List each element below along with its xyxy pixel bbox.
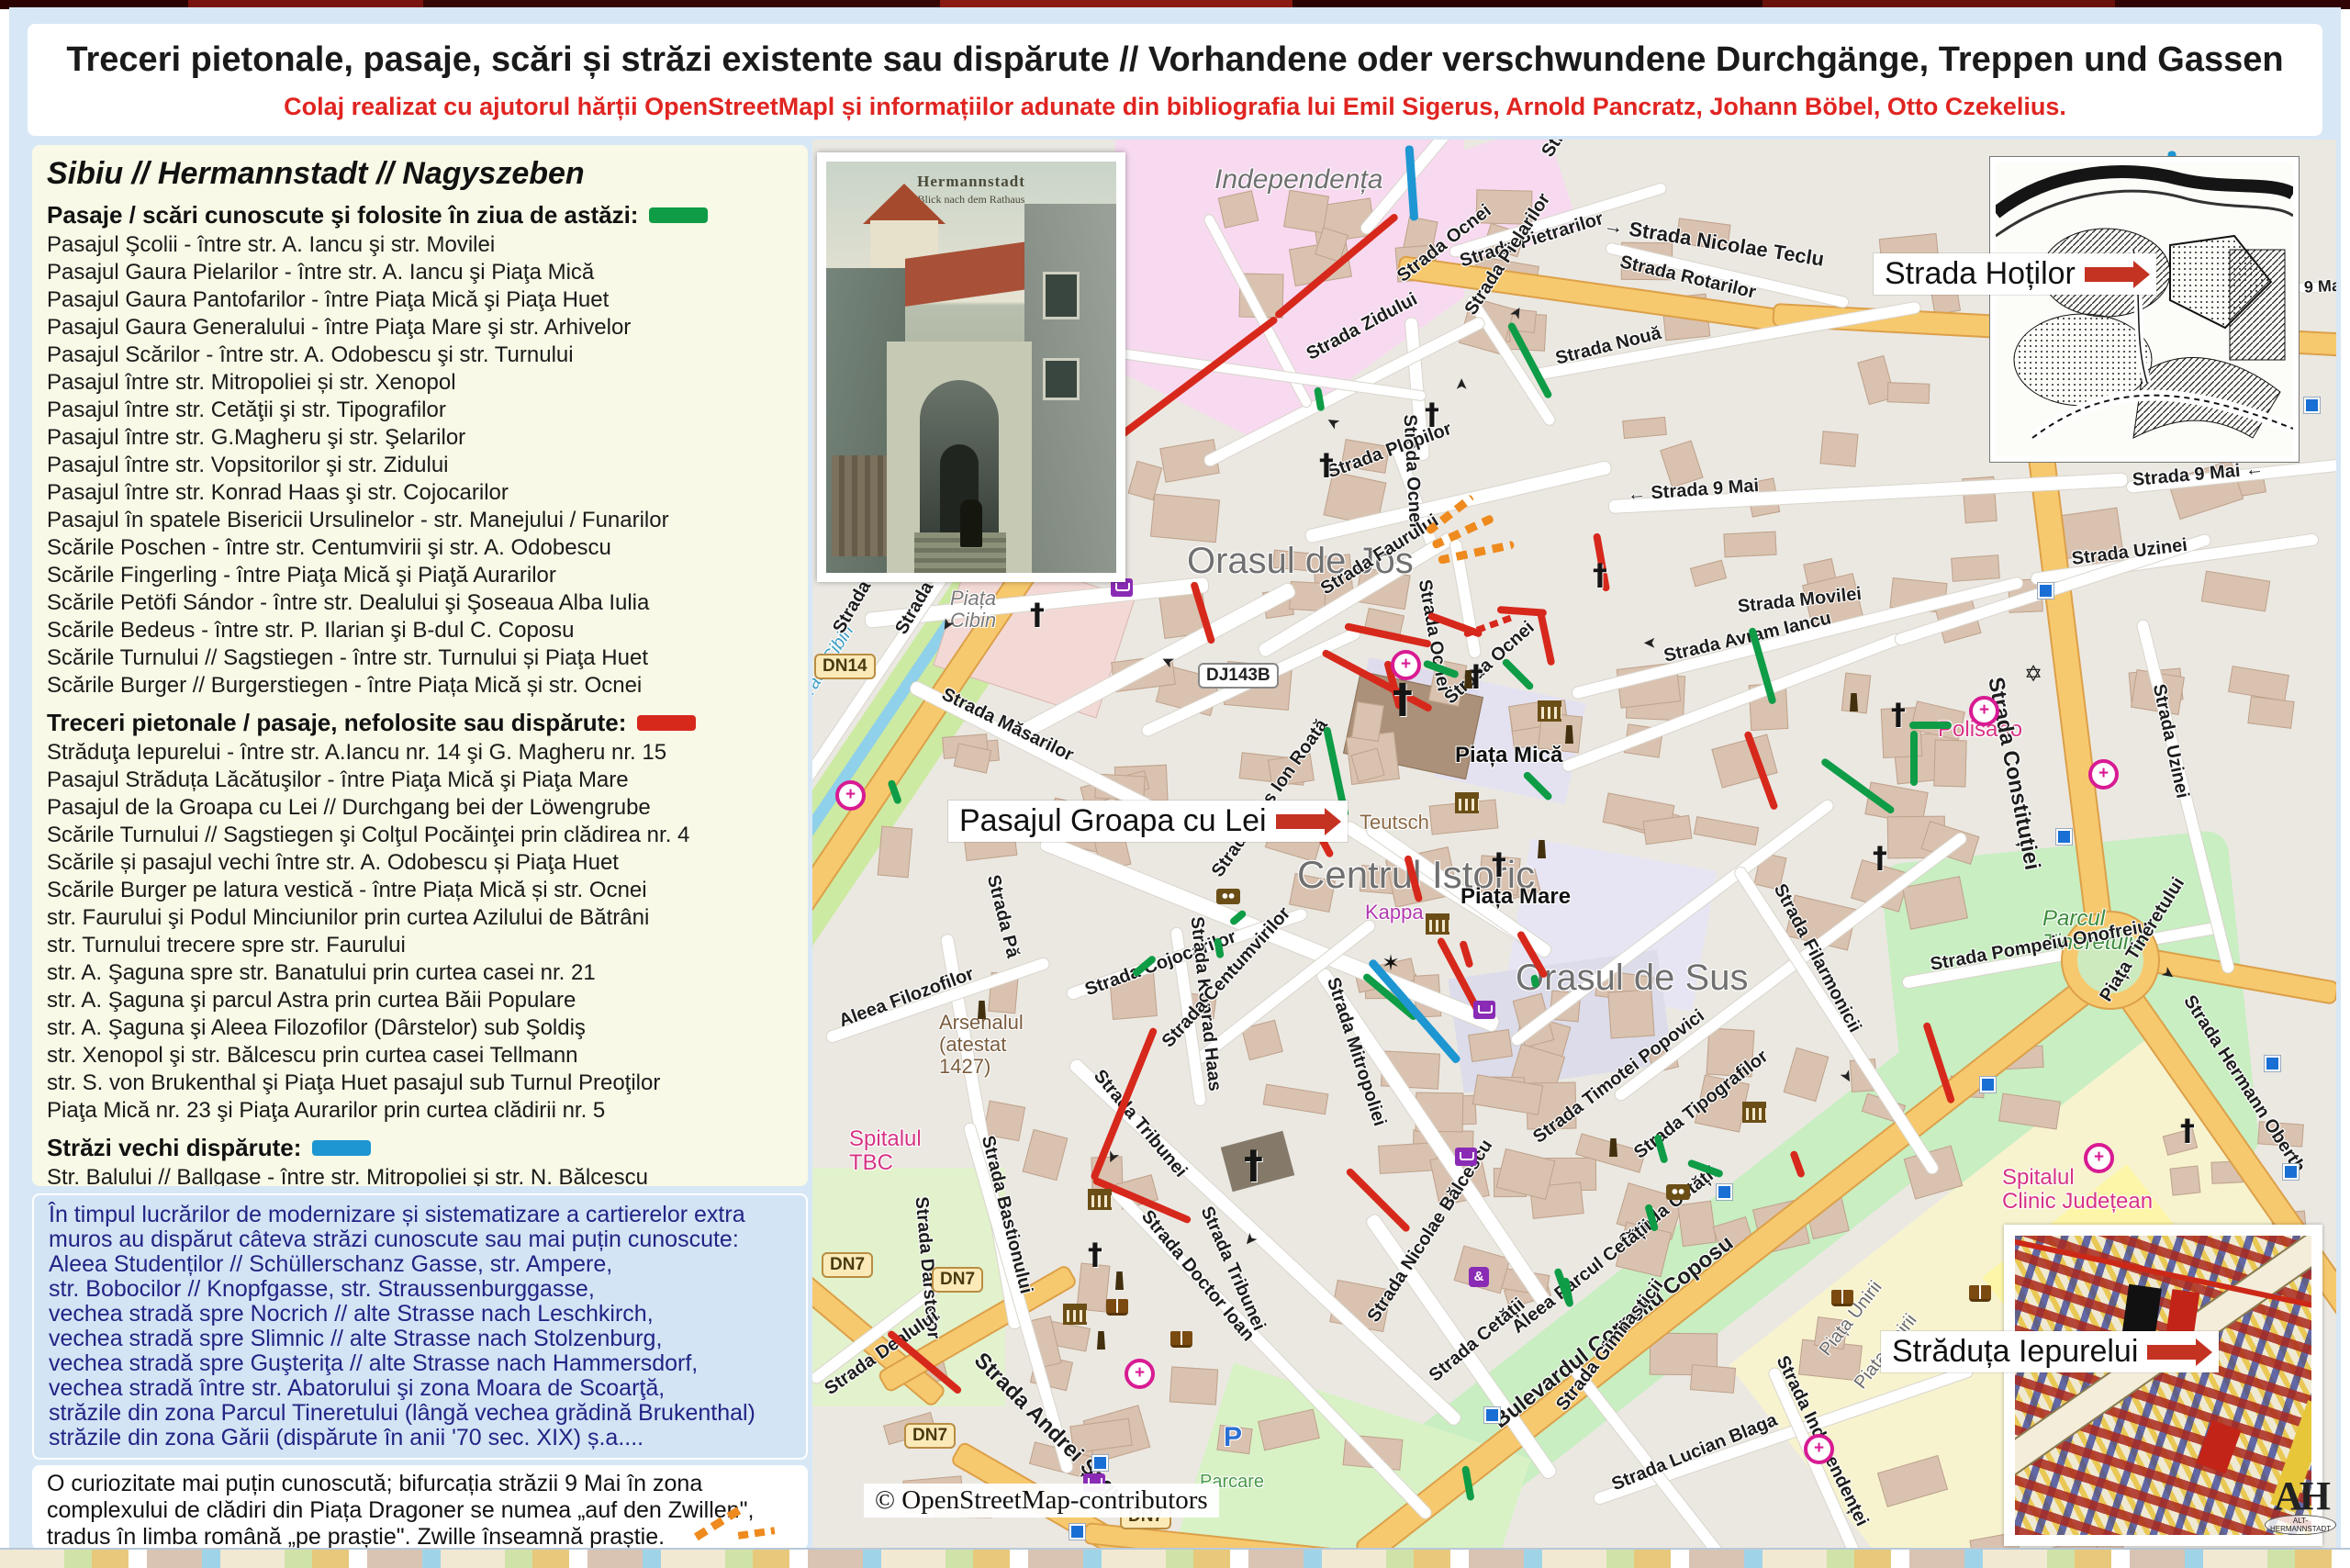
- church-icon: [1891, 700, 1906, 729]
- list-item: Scările Petöfi Sándor - între str. Dealu…: [47, 589, 808, 617]
- list-item: Pasajul Gaura Pielarilor - între str. A.…: [47, 259, 808, 286]
- overlay-segment: [1459, 940, 1473, 969]
- church-icon: [1593, 560, 1607, 589]
- note-line: vechea stradă spre Nocrich // alte Stras…: [49, 1302, 806, 1327]
- legend-sidebar: Sibiu // Hermannstadt // Nagyszeben Pasa…: [32, 145, 808, 1186]
- list-item: Pasajul între str. Konrad Haas şi str. C…: [47, 479, 808, 507]
- historical-photo: Hermannstadt Blick nach dem Rathaus: [826, 162, 1116, 573]
- list-item: Str. Balului // Ballgase - între str. Mi…: [47, 1164, 808, 1186]
- list-item: Scările Turnului // Sagstiegen şi Colţul…: [47, 822, 808, 849]
- area-label: Piața Mare: [1460, 885, 1571, 909]
- photo-window: [1043, 272, 1080, 319]
- list-item: Străduţa Iepurelui - între str. A.Iancu …: [47, 739, 808, 767]
- church-icon: [1873, 843, 1887, 872]
- road-ref-badge: DN7: [932, 1267, 983, 1293]
- photo-fence: [832, 455, 887, 556]
- note-line: vechea stradă între str. Abatorului şi z…: [49, 1376, 806, 1401]
- callout-label: Pasajul Groapa cu Lei: [959, 803, 1267, 839]
- list-item: str. Faurului şi Podul Minciunilor prin …: [47, 904, 808, 932]
- museum-icon: [1742, 1102, 1766, 1123]
- list-item: Scările Burger pe latura vestică - între…: [47, 877, 808, 904]
- road-ref-badge: DN7: [822, 1252, 873, 1278]
- list-item: Scările Fingerling - între Piaţa Mică şi…: [47, 562, 808, 589]
- church-icon: [1393, 679, 1413, 720]
- note-line: străzile din zona Gării (dispărute în an…: [49, 1426, 806, 1450]
- building: [1723, 532, 1776, 558]
- old-map-drawing: [1996, 162, 2293, 456]
- monument-icon: [1097, 1331, 1105, 1350]
- book-icon: [1831, 1290, 1853, 1306]
- hospital-icon: [835, 780, 866, 811]
- building: [1150, 494, 1220, 543]
- area-label: Orasul de Sus: [1516, 958, 1748, 998]
- list-item: str. S. von Brukenthal şi Piaţa Huet pas…: [47, 1070, 808, 1097]
- blue-square-icon: [1484, 1407, 1500, 1423]
- museum-icon: [1088, 1189, 1112, 1210]
- photo-window: [1043, 358, 1080, 400]
- hospital-icon: [1969, 696, 1999, 726]
- hospital-icon: [1391, 650, 1421, 680]
- list-item: Pasajul Scărilor - între str. A. Odobesc…: [47, 342, 808, 369]
- existing-passages-list: Pasajul Şcolii - între str. A. Iancu şi …: [47, 231, 808, 700]
- cart-icon: [1455, 1148, 1477, 1166]
- callout-label: Străduța Iepurelui: [1892, 1334, 2138, 1370]
- blue-square-icon: [1069, 1524, 1085, 1540]
- road-ref-badge: DN14: [814, 654, 876, 679]
- monument-icon: [1850, 693, 1858, 711]
- monument-icon: [978, 1001, 986, 1019]
- building: [1622, 417, 1666, 439]
- note-line: vechea stradă spre Slimnic // alte Stras…: [49, 1327, 806, 1351]
- list-item: Pasajul Gaura Pantofarilor - între Piaţa…: [47, 286, 808, 314]
- museum-icon: [1538, 700, 1561, 722]
- section-title-text: Străzi vechi dispărute:: [47, 1134, 301, 1162]
- list-item: str. A. Şaguna spre str. Banatului prin …: [47, 959, 808, 987]
- modernization-note-box: În timpul lucrărilor de modernizare și s…: [32, 1193, 808, 1460]
- building: [878, 825, 913, 877]
- monument-icon: [1609, 1138, 1617, 1157]
- star-icon: [1382, 953, 1400, 975]
- red-arrow-icon: [2085, 267, 2134, 282]
- building: [1643, 815, 1693, 846]
- note-line: muros au dispărut câteva străzi cunoscut…: [49, 1227, 806, 1252]
- list-item: str. Turnului trecere spre str. Faurului: [47, 932, 808, 959]
- museum-icon: [1455, 792, 1479, 813]
- list-item: Scările Poschen - între str. Centumvirii…: [47, 534, 808, 562]
- building: [1819, 431, 1858, 466]
- hospital-icon: [1804, 1434, 1834, 1464]
- map-callout: Pasajul Groapa cu Lei: [948, 801, 1348, 842]
- overlay-segment: [1909, 722, 1952, 729]
- road-ref-badge: DJ143B: [1198, 663, 1279, 689]
- building: [1783, 1047, 1829, 1101]
- overlay-segment: [1910, 731, 1918, 786]
- building: [1351, 701, 1384, 742]
- monument-icon: [1538, 840, 1546, 858]
- church-icon: [1319, 450, 1334, 479]
- page-title: Treceri pietonale, pasaje, scări și stră…: [28, 40, 2322, 80]
- building: [1169, 1366, 1218, 1406]
- monument-icon: [1464, 670, 1472, 689]
- area-label: Spitalul TBC: [849, 1127, 922, 1175]
- street-label: Strada Pă: [982, 873, 1024, 960]
- red-arrow-icon: [2147, 1345, 2197, 1360]
- monument-icon: [1565, 725, 1573, 744]
- list-item: Pasajul între str. G.Magheru şi str. Şel…: [47, 424, 808, 452]
- blue-square-icon: [2038, 583, 2053, 599]
- arrow-icon: [1454, 377, 1470, 390]
- author-signature: AH ALT-HERMANNSTADT: [2265, 1478, 2336, 1535]
- area-label: Piața Mică: [1455, 744, 1562, 767]
- list-item: Scările și pasajul vechi între str. A. O…: [47, 849, 808, 877]
- area-label: Spitalul Clinic Județean: [2002, 1166, 2153, 1214]
- building: [1951, 554, 2000, 582]
- list-item: str. A. Şaguna şi parcul Astra prin curt…: [47, 987, 808, 1014]
- building: [2247, 696, 2294, 728]
- list-item: Pasajul Şcolii - între str. A. Iancu şi …: [47, 231, 808, 259]
- section-title-existing: Pasaje / scări cunoscute şi folosite în …: [47, 201, 808, 230]
- synagogue-icon: [2024, 664, 2042, 686]
- list-item: Pasajul de la Groapa cu Lei // Durchgang…: [47, 794, 808, 822]
- photo-figure: [960, 499, 982, 547]
- hospital-icon: [1125, 1359, 1155, 1389]
- church-icon: [1425, 399, 1439, 429]
- hospital-icon: [2084, 1143, 2114, 1173]
- section-title-gone: Treceri pietonale / pasaje, nefolosite s…: [47, 709, 808, 737]
- red-arrow-icon: [1276, 814, 1326, 829]
- area-label: Teutsch: [1360, 812, 1429, 834]
- list-item: Pasajul între str. Cetăţii şi str. Tipog…: [47, 397, 808, 424]
- list-item: Pasajul între str. Mitropoliei și str. X…: [47, 369, 808, 397]
- header: Treceri pietonale, pasaje, scări și stră…: [28, 24, 2322, 136]
- building: [1690, 1364, 1736, 1394]
- note-line: străzile din zona Parcul Tineretului (lâ…: [49, 1401, 806, 1426]
- ampersand-icon: [1469, 1267, 1489, 1287]
- historical-photo-inset: Hermannstadt Blick nach dem Rathaus: [817, 152, 1125, 582]
- church-icon: [1492, 849, 1506, 879]
- museum-icon: [1063, 1304, 1087, 1325]
- section-title-text: Pasaje / scări cunoscute şi folosite în …: [47, 201, 638, 230]
- area-label: Independența: [1214, 165, 1383, 195]
- building: [2201, 571, 2271, 612]
- list-item: Scările Bedeus - între str. P. Ilarian ş…: [47, 617, 808, 644]
- book-icon: [1170, 1331, 1192, 1348]
- monument-icon: [1115, 1271, 1124, 1290]
- book-icon: [1969, 1285, 1991, 1302]
- note-line: str. Bobocilor // Knopfgasse, str. Strau…: [49, 1277, 806, 1302]
- area-label: Arsenalul (atestat 1427): [939, 1012, 1024, 1077]
- building: [1690, 559, 1727, 586]
- blue-square-icon: [1980, 1077, 1996, 1092]
- list-item: Pasajul în spatele Bisericii Ursulinelor…: [47, 507, 808, 534]
- blue-square-icon: [2283, 1164, 2299, 1180]
- blue-square-icon: [2265, 1056, 2280, 1071]
- list-item: Pasajul Gaura Generalului - între Piaţa …: [47, 314, 808, 342]
- old-streets-list: Str. Balului // Ballgase - între str. Mi…: [47, 1164, 808, 1186]
- overlay-segment: [1090, 1026, 1158, 1181]
- list-item: Scările Turnului // Sagstiegen - între s…: [47, 644, 808, 672]
- arrow-icon: [1643, 635, 1656, 651]
- building: [1887, 382, 1930, 403]
- note-line: vechea stradă spre Guşteriţa // alte Str…: [49, 1351, 806, 1376]
- building: [2228, 666, 2289, 701]
- arrow-icon: [1324, 413, 1343, 433]
- building: [1378, 1142, 1438, 1174]
- hospital-icon: [2088, 759, 2119, 790]
- list-item: str. Xenopol şi str. Bălcescu prin curte…: [47, 1042, 808, 1070]
- old-map-inset: [1989, 156, 2300, 463]
- poster: Treceri pietonale, pasaje, scări și stră…: [0, 0, 2350, 1566]
- cadastral-block: [2196, 1420, 2241, 1474]
- note-line: Aleea Studenților // Schüllerschanz Gass…: [49, 1252, 806, 1277]
- city-heading: Sibiu // Hermannstadt // Nagyszeben: [47, 156, 808, 192]
- map-canvas: Strada Ma→ Strada Nicolae TecluStrada Oc…: [812, 140, 2336, 1550]
- map-callout: Străduța Iepurelui: [1881, 1331, 2219, 1372]
- road-ref-badge: DN7: [904, 1423, 956, 1449]
- building: [1263, 1084, 1329, 1115]
- list-item: Piaţa Mică nr. 23 şi Piaţa Aurarilor pri…: [47, 1097, 808, 1125]
- book-icon: [1106, 1299, 1128, 1316]
- building: [2170, 1166, 2201, 1196]
- legend-swatch-red: [637, 715, 696, 731]
- photo-tower-roof-icon: [863, 184, 946, 224]
- list-item: Pasajul între str. Vopsitorilor şi str. …: [47, 452, 808, 479]
- list-item: Pasajul Străduța Lăcătuşilor - între Pia…: [47, 767, 808, 794]
- church-icon: [2180, 1115, 2195, 1145]
- blue-square-icon: [2056, 829, 2072, 845]
- cart-icon: [1473, 1001, 1495, 1019]
- building: [1694, 816, 1759, 846]
- note-line: În timpul lucrărilor de modernizare și s…: [49, 1203, 806, 1227]
- blue-square-icon: [2304, 398, 2320, 413]
- section-title-old-streets: Străzi vechi dispărute:: [47, 1134, 808, 1162]
- building: [1933, 740, 1967, 788]
- note-line: O curiozitate mai puțin cunoscută; bifur…: [47, 1471, 808, 1497]
- bottom-decor-strip: [0, 1548, 2350, 1568]
- theater-icon: [1666, 1184, 1690, 1200]
- legend-swatch-blue: [312, 1140, 371, 1156]
- note-line: complexului de clădiri din Piața Dragone…: [47, 1497, 808, 1524]
- museum-icon: [1426, 913, 1449, 935]
- area-label: Kappa: [1365, 902, 1424, 924]
- street-label: Strada Uzinei: [2148, 682, 2193, 801]
- note-line: tradus în limba română „pe praștie". Zwi…: [47, 1524, 808, 1550]
- overlay-segment: [1537, 610, 1555, 666]
- blue-square-icon: [1092, 1455, 1108, 1471]
- gone-passages-list: Străduţa Iepurelui - între str. A.Iancu …: [47, 739, 808, 1125]
- building: [1022, 1129, 1068, 1181]
- page-subtitle: Colaj realizat cu ajutorul hărții OpenSt…: [28, 93, 2322, 121]
- section-title-text: Treceri pietonale / pasaje, nefolosite s…: [47, 709, 626, 737]
- osm-attribution: © OpenStreetMap-contributors: [864, 1484, 1219, 1518]
- callout-label: Strada Hoților: [1885, 256, 2076, 292]
- theater-icon: [1216, 889, 1240, 904]
- church-icon: [1244, 1146, 1263, 1184]
- curiosity-note-box: O curiozitate mai puțin cunoscută; bifur…: [32, 1465, 808, 1550]
- signature-initials: AH: [2265, 1478, 2336, 1515]
- church-icon: [1030, 599, 1045, 629]
- blue-square-icon: [1717, 1184, 1732, 1200]
- church-icon: [1088, 1239, 1102, 1269]
- list-item: str. A. Şaguna şi Aleea Filozofilor (Dâr…: [47, 1014, 808, 1042]
- area-label: P: [1224, 1423, 1242, 1452]
- map-callout: Strada Hoților: [1874, 253, 2156, 295]
- legend-swatch-green: [649, 207, 708, 223]
- list-item: Scările Burger // Burgerstiegen - între …: [47, 672, 808, 700]
